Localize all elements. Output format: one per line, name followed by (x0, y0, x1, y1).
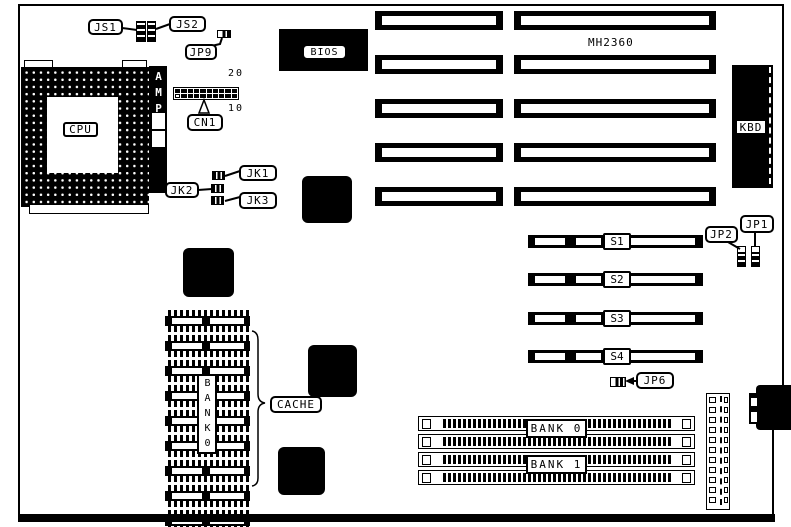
cn1-pin (200, 89, 205, 93)
sipp-slot-s1: S1 (528, 235, 703, 248)
jp2-label: JP2 (705, 226, 738, 243)
board-border-right-lower (772, 424, 774, 518)
power-connector (706, 393, 730, 510)
js2-jumper-block (147, 21, 156, 42)
cn1-pin (232, 89, 237, 93)
jk2-leader-line (198, 189, 212, 190)
cn1-pin10-number: 10 (228, 103, 244, 114)
power-pin (709, 417, 716, 423)
power-connector-ticks (724, 397, 728, 503)
jk3-label: JK3 (239, 192, 277, 209)
js2-leader-line (156, 24, 170, 29)
cn1-pin (207, 89, 212, 93)
cn1-pin (225, 94, 230, 98)
bank0-label: BANK 0 (526, 419, 587, 438)
cn1-pin (194, 89, 199, 93)
isa-slot-rows (375, 11, 716, 206)
power-tick (724, 437, 728, 443)
power-tick (724, 417, 728, 423)
amp-bracket: AMP (149, 66, 167, 193)
jk2-jumper-block (211, 184, 224, 193)
s2-label: S2 (603, 271, 631, 288)
power-pin (709, 497, 716, 503)
power-pin (709, 467, 716, 473)
cpu-label: CPU (63, 122, 98, 137)
isa-slot-row (375, 55, 716, 74)
cn1-pin (175, 94, 180, 98)
power-pin (709, 427, 716, 433)
amp-label: AMP (152, 70, 164, 118)
jk1-jumper-block (212, 171, 225, 180)
cn1-pin (213, 94, 218, 98)
qfp-chip-middle (308, 345, 357, 397)
bios-chip: BIOS (279, 29, 368, 71)
cn1-pin (213, 89, 218, 93)
power-connector-dashed-line (720, 396, 722, 505)
cache-label: CACHE (270, 396, 322, 413)
js1-label: JS1 (88, 19, 123, 35)
power-tick (724, 457, 728, 463)
power-connector-pins (709, 397, 716, 503)
cn1-pin (225, 89, 230, 93)
power-tick (724, 407, 728, 413)
cn1-pin (181, 94, 186, 98)
jp6-arrowhead (625, 377, 634, 385)
jk3-jumper-block (211, 196, 224, 205)
edge-socket-pin-upper (751, 398, 757, 406)
board-model-text: MH2360 (588, 36, 634, 49)
cn1-pin (175, 89, 180, 93)
cpu-socket-lever (29, 204, 149, 214)
board-border-right-upper (782, 4, 784, 390)
power-pin (709, 397, 716, 403)
cn1-pin (181, 89, 186, 93)
isa-slot-row (375, 11, 716, 30)
qfp-chip-lower (278, 447, 325, 495)
jp9-jumper-block (217, 30, 231, 38)
edge-socket-pin-lower (751, 412, 757, 422)
cn1-pin (188, 89, 193, 93)
power-tick (724, 487, 728, 493)
sipp-slot-s4: S4 (528, 350, 703, 363)
s3-label: S3 (603, 310, 631, 327)
board-border-bottom (18, 514, 775, 522)
js1-jumper-block (136, 21, 146, 42)
cn1-pin (194, 94, 199, 98)
jk3-leader-line (225, 197, 240, 201)
cache-bank0-vertical-label: BANK0 (197, 374, 217, 454)
power-pin (709, 487, 716, 493)
power-tick (724, 497, 728, 503)
cn1-pin (200, 94, 205, 98)
cn1-connector (173, 87, 239, 100)
jp9-label: JP9 (185, 44, 217, 60)
power-tick (724, 427, 728, 433)
cache-chip (165, 335, 250, 357)
power-tick (724, 397, 728, 403)
board-border-top (18, 4, 784, 6)
jk1-leader-line (225, 171, 240, 176)
cache-brace (252, 331, 265, 486)
cn1-pointer-arrow (199, 100, 209, 113)
qfp-chip-upper (302, 176, 352, 223)
bank1-label: BANK 1 (526, 455, 587, 474)
isa-slot-row (375, 187, 716, 206)
board-border-left (18, 4, 20, 516)
jp6-jumper-block (610, 377, 626, 387)
s1-label: S1 (603, 233, 631, 250)
cn1-pin (232, 94, 237, 98)
power-pin (709, 457, 716, 463)
cache-chip (165, 310, 250, 332)
cn1-pin (219, 94, 224, 98)
cn1-pin (207, 94, 212, 98)
keyboard-connector: KBD (732, 65, 773, 188)
sipp-slot-s3: S3 (528, 312, 703, 325)
jk1-label: JK1 (239, 165, 277, 181)
isa-slot-row (375, 143, 716, 162)
js2-label: JS2 (169, 16, 206, 32)
power-tick (724, 477, 728, 483)
cn1-pin (188, 94, 193, 98)
jp1-jumper-block (751, 246, 760, 267)
cn1-pin (219, 89, 224, 93)
sipp-slot-s2: S2 (528, 273, 703, 286)
keyboard-connector-dashed-line (769, 67, 771, 184)
power-pin (709, 447, 716, 453)
qfp-chip-left (183, 248, 234, 297)
cn1-label: CN1 (187, 114, 223, 131)
power-tick (724, 447, 728, 453)
cn1-pin20-number: 20 (228, 68, 244, 79)
edge-power-socket (756, 385, 791, 430)
kbd-label: KBD (735, 119, 767, 135)
power-pin (709, 477, 716, 483)
power-tick (724, 467, 728, 473)
jp6-label: JP6 (636, 372, 674, 389)
power-pin (709, 437, 716, 443)
js1-leader-line (122, 28, 137, 30)
jp2-jumper-block (737, 246, 746, 267)
cache-chip (165, 485, 250, 507)
power-pin (709, 407, 716, 413)
isa-slot-row (375, 99, 716, 118)
jp1-label: JP1 (740, 215, 774, 233)
motherboard-diagram: CPU AMP JS1 JS2 JP9 20 10 CN1 BIOS MH236… (0, 0, 791, 527)
cache-chip (165, 460, 250, 482)
bios-label: BIOS (303, 45, 346, 59)
jk2-label: JK2 (165, 182, 199, 198)
s4-label: S4 (603, 348, 631, 365)
amp-bracket-slot (151, 112, 166, 148)
